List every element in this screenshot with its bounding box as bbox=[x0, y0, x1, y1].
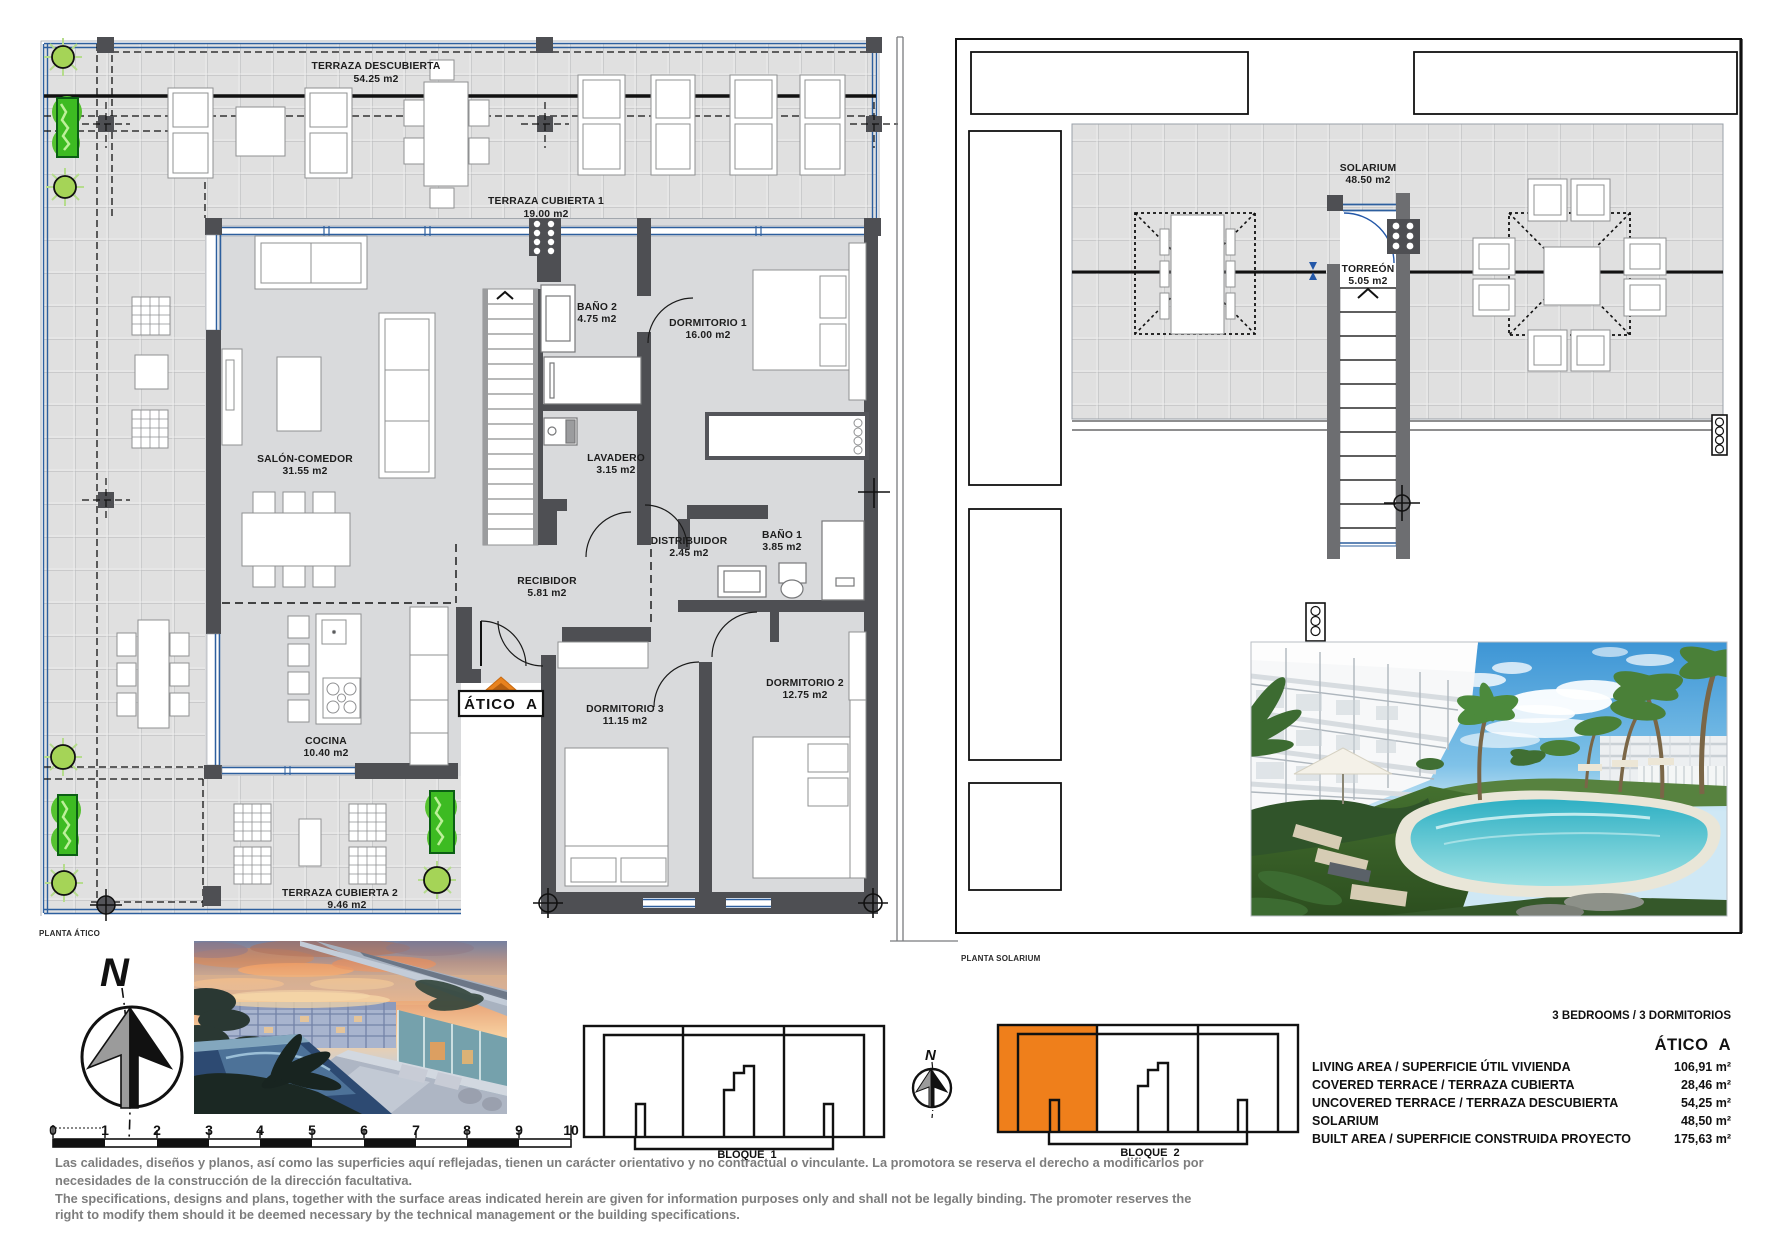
svg-text:3 BEDROOMS / 3 DORMITORIOS: 3 BEDROOMS / 3 DORMITORIOS bbox=[1552, 1010, 1731, 1022]
svg-text:PLANTA ÁTICO: PLANTA ÁTICO bbox=[39, 929, 100, 938]
svg-text:48.50 m2: 48.50 m2 bbox=[1345, 175, 1390, 186]
svg-text:Las calidades, diseños y plano: Las calidades, diseños y planos, así com… bbox=[55, 1155, 1204, 1170]
svg-text:TERRAZA CUBIERTA 2: TERRAZA CUBIERTA 2 bbox=[282, 888, 398, 899]
svg-text:SOLARIUM: SOLARIUM bbox=[1312, 1114, 1379, 1128]
svg-text:ÁTICO A: ÁTICO A bbox=[1655, 1035, 1731, 1054]
svg-text:BAÑO 1: BAÑO 1 bbox=[762, 528, 802, 541]
svg-text:SOLARIUM: SOLARIUM bbox=[1340, 163, 1397, 174]
svg-text:DORMITORIO 3: DORMITORIO 3 bbox=[586, 704, 664, 715]
svg-text:2.45 m2: 2.45 m2 bbox=[669, 548, 708, 559]
svg-text:LAVADERO: LAVADERO bbox=[587, 453, 645, 464]
svg-text:TERRAZA CUBIERTA 1: TERRAZA CUBIERTA 1 bbox=[488, 196, 604, 207]
svg-text:5.05 m2: 5.05 m2 bbox=[1348, 276, 1387, 287]
svg-text:TERRAZA DESCUBIERTA: TERRAZA DESCUBIERTA bbox=[311, 61, 440, 72]
svg-text:The specifications, designs an: The specifications, designs and plans, t… bbox=[55, 1191, 1191, 1206]
svg-text:54.25 m2: 54.25 m2 bbox=[353, 74, 398, 85]
svg-text:106,91 m²: 106,91 m² bbox=[1674, 1060, 1731, 1074]
svg-text:28,46 m²: 28,46 m² bbox=[1681, 1078, 1731, 1092]
svg-text:DISTRIBUIDOR: DISTRIBUIDOR bbox=[651, 536, 728, 547]
svg-text:11.15 m2: 11.15 m2 bbox=[603, 716, 648, 727]
svg-text:BAÑO 2: BAÑO 2 bbox=[577, 300, 617, 313]
svg-text:12.75 m2: 12.75 m2 bbox=[782, 690, 827, 701]
svg-text:PLANTA SOLARIUM: PLANTA SOLARIUM bbox=[961, 954, 1041, 963]
svg-text:31.55 m2: 31.55 m2 bbox=[282, 466, 327, 477]
svg-text:10.40 m2: 10.40 m2 bbox=[303, 748, 348, 759]
svg-text:175,63 m²: 175,63 m² bbox=[1674, 1132, 1731, 1146]
svg-text:N: N bbox=[925, 1047, 937, 1064]
svg-text:LIVING AREA / SUPERFICIE ÚTIL: LIVING AREA / SUPERFICIE ÚTIL VIVIENDA bbox=[1312, 1059, 1571, 1074]
svg-text:SALÓN-COMEDOR: SALÓN-COMEDOR bbox=[257, 452, 353, 465]
svg-text:right to modify them should it: right to modify them should it be deemed… bbox=[55, 1207, 740, 1222]
svg-text:3.15 m2: 3.15 m2 bbox=[596, 465, 635, 476]
svg-text:5.81 m2: 5.81 m2 bbox=[527, 588, 566, 599]
svg-text:48,50 m²: 48,50 m² bbox=[1681, 1114, 1731, 1128]
svg-text:RECIBIDOR: RECIBIDOR bbox=[517, 576, 577, 587]
svg-text:COCINA: COCINA bbox=[305, 736, 347, 747]
svg-text:DORMITORIO 1: DORMITORIO 1 bbox=[669, 318, 747, 329]
svg-text:3.85 m2: 3.85 m2 bbox=[762, 542, 801, 553]
svg-text:UNCOVERED TERRACE / TERRAZA DE: UNCOVERED TERRACE / TERRAZA DESCUBIERTA bbox=[1312, 1096, 1618, 1110]
svg-text:54,25 m²: 54,25 m² bbox=[1681, 1096, 1731, 1110]
svg-text:BUILT AREA / SUPERFICIE CONSTR: BUILT AREA / SUPERFICIE CONSTRUIDA PROYE… bbox=[1312, 1132, 1631, 1146]
svg-text:COVERED TERRACE / TERRAZA CUBI: COVERED TERRACE / TERRAZA CUBIERTA bbox=[1312, 1078, 1575, 1092]
svg-text:4.75 m2: 4.75 m2 bbox=[577, 314, 616, 325]
svg-text:9.46 m2: 9.46 m2 bbox=[327, 900, 366, 911]
svg-text:N: N bbox=[100, 951, 130, 995]
svg-text:TORREÓN: TORREÓN bbox=[1342, 262, 1395, 275]
svg-text:necesidades de la construcción: necesidades de la construcción de la dir… bbox=[55, 1173, 412, 1188]
svg-text:16.00 m2: 16.00 m2 bbox=[685, 330, 730, 341]
svg-text:ÁTICO A: ÁTICO A bbox=[464, 696, 538, 713]
svg-text:DORMITORIO 2: DORMITORIO 2 bbox=[766, 678, 844, 689]
